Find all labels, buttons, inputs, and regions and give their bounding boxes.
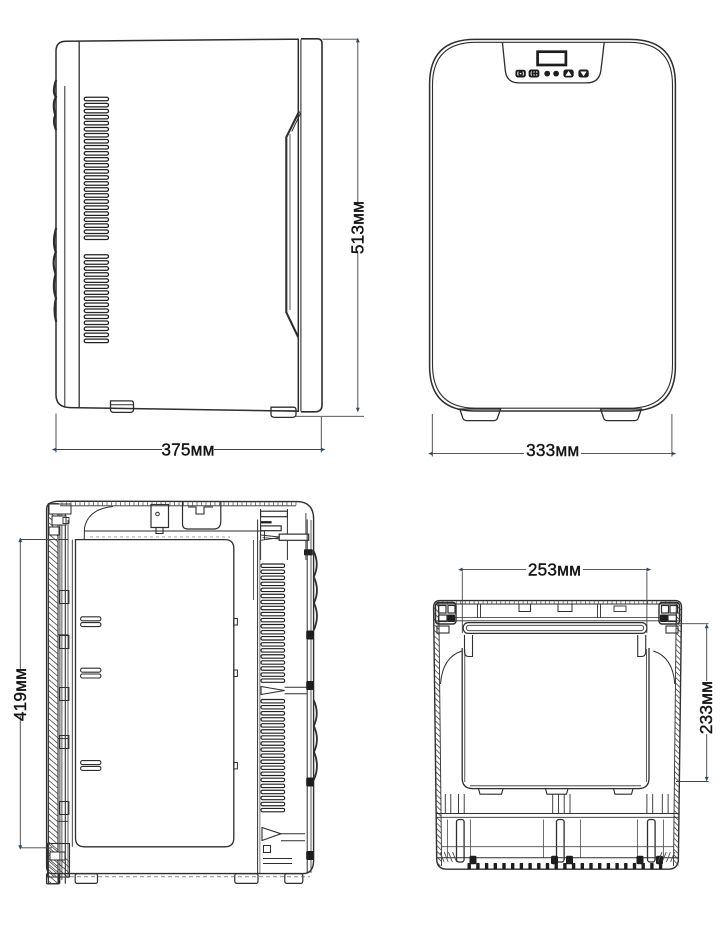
svg-text:419мм: 419мм: [10, 668, 30, 721]
svg-text:513мм: 513мм: [347, 201, 367, 254]
svg-text:233мм: 233мм: [696, 681, 716, 734]
svg-text:253мм: 253мм: [528, 559, 581, 579]
svg-text:333мм: 333мм: [526, 440, 579, 460]
svg-text:375мм: 375мм: [161, 439, 214, 459]
